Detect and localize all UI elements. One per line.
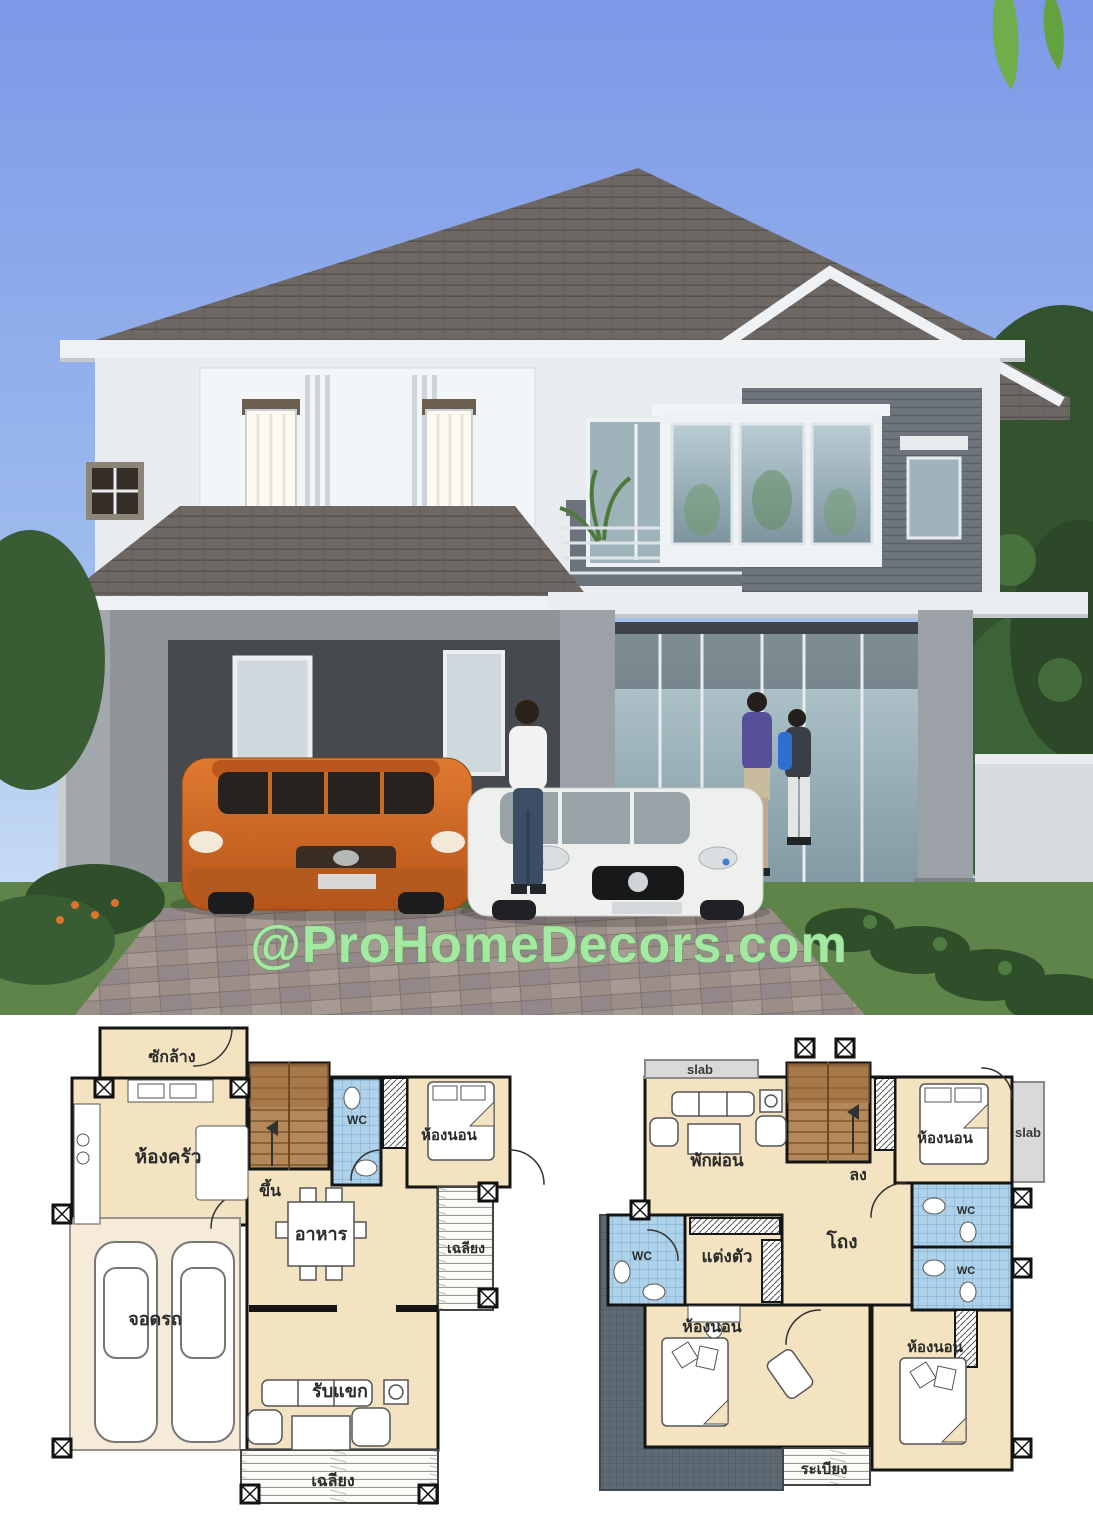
plan-first-floor: ซักล้าง ห้องครัว ขึ้น WC ห้องนอน อาหาร เ… <box>53 1028 544 1503</box>
plan2-closet-a <box>875 1078 895 1150</box>
room-label-bedroom-top: ห้องนอน <box>917 1130 973 1147</box>
room-label-wc-top: WC <box>957 1205 975 1217</box>
room-label-bedroom1: ห้องนอน <box>421 1127 477 1144</box>
room-label-laundry: ซักล้าง <box>148 1048 195 1066</box>
carport-window-2 <box>445 652 503 774</box>
white-car <box>460 788 770 927</box>
room-label-front-porch: เฉลียง <box>311 1471 354 1490</box>
plan2-stairs <box>787 1063 870 1162</box>
room-label-wc-left: WC <box>632 1249 652 1263</box>
bay-window <box>652 404 890 567</box>
plan2-wardrobe-top <box>690 1218 780 1234</box>
column-right <box>918 610 973 910</box>
room-label-bedroom-right: ห้องนอน <box>907 1339 963 1356</box>
room-label-wc-bottom: WC <box>957 1265 975 1277</box>
man-standing <box>509 700 547 894</box>
room-label-wc1: WC <box>347 1113 367 1127</box>
floor-plans: ซักล้าง ห้องครัว ขึ้น WC ห้องนอน อาหาร เ… <box>0 1015 1093 1536</box>
room-label-slab-top: slab <box>687 1062 713 1077</box>
terrace-beam <box>548 592 1088 616</box>
plan1-closet <box>383 1078 407 1148</box>
room-label-bedroom-left: ห้องนอน <box>682 1318 742 1336</box>
room-label-stairs-down: ลง <box>849 1167 867 1184</box>
room-label-dressing: แต่งตัว <box>702 1247 753 1266</box>
room-label-family: พักผ่อน <box>690 1151 744 1170</box>
room-label-dining: อาหาร <box>295 1224 348 1244</box>
orange-suv <box>170 758 490 921</box>
small-square-window <box>86 462 144 520</box>
room-label-side-porch: เฉลียง <box>447 1240 485 1256</box>
watermark: @ProHomeDecors.com <box>250 916 848 974</box>
room-label-kitchen: ห้องครัว <box>135 1146 202 1168</box>
room-label-garage: จอดรถ <box>128 1309 182 1329</box>
room-label-balcony: ระเบียง <box>801 1461 848 1478</box>
page: @ProHomeDecors.com <box>0 0 1093 1536</box>
room-label-hall: โถง <box>826 1230 858 1253</box>
roof-fascia <box>60 340 1025 360</box>
room-label-slab-right: slab <box>1015 1125 1041 1140</box>
house-render: @ProHomeDecors.com <box>0 0 1093 1015</box>
plan1-bed <box>428 1082 494 1160</box>
plan2-wardrobe-side <box>762 1240 782 1302</box>
room-label-living: รับแขก <box>312 1381 368 1401</box>
plan-second-floor: slab พักผ่อน ลง ห้องนอน slab WC WC WC แต… <box>600 1039 1044 1490</box>
plan2-wc-bottom <box>912 1247 1012 1310</box>
plan1-stairs <box>249 1063 329 1169</box>
